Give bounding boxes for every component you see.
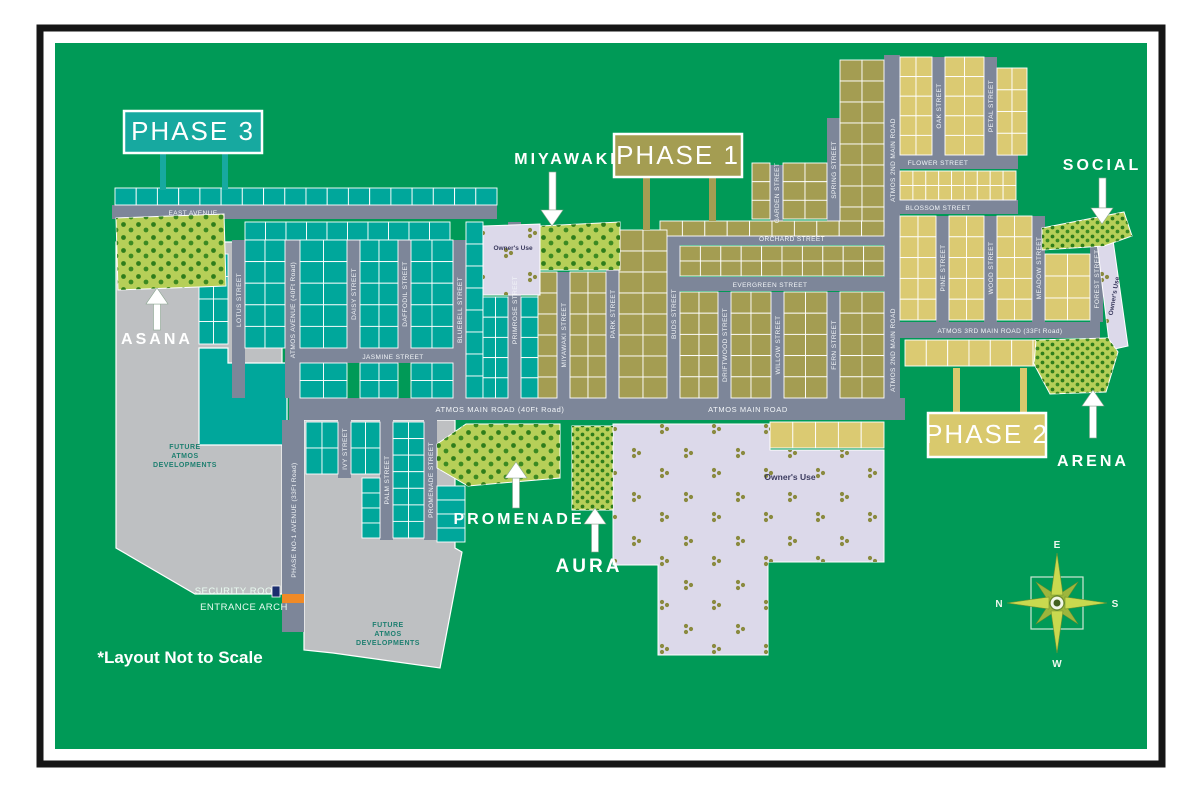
security-room-icon	[272, 586, 280, 597]
arena-label: ARENA	[1057, 453, 1129, 470]
street-label-atmos-main-40: ATMOS MAIN ROAD (40Ft Road)	[436, 405, 565, 414]
compass-east: E	[1054, 540, 1061, 551]
plot-grid	[360, 240, 398, 348]
street-label-blossom: BLOSSOM STREET	[905, 205, 970, 212]
phase3-label: PHASE 3	[131, 116, 255, 146]
plot-grid	[900, 216, 936, 320]
compass-south: S	[1112, 599, 1119, 610]
street-label-willow: WILLOW STREET	[775, 315, 782, 374]
plot-grid	[362, 478, 380, 538]
street-label-phase-no1-avenue: PHASE NO-1 AVENUE (33Ft Road)	[291, 462, 298, 577]
plot-grid	[900, 171, 1016, 200]
asana-label: ASANA	[121, 331, 193, 348]
street-label-orchard: ORCHARD STREET	[759, 236, 825, 243]
plot-grid	[245, 240, 285, 348]
aura-area	[572, 426, 613, 510]
street-label-meadow: MEADOW STREET	[1036, 237, 1043, 300]
plot-grid	[300, 240, 347, 348]
street-label-atmos-avenue: ATMOS AVENUE (40Ft Road)	[290, 262, 297, 358]
plot-grid	[538, 272, 557, 398]
street-label-lotus: LOTUS STREET	[236, 273, 243, 327]
plot-grid	[411, 363, 453, 398]
road-atmos-main	[289, 398, 905, 420]
entrance-arch-icon	[282, 594, 304, 603]
phase1-stem-right	[709, 176, 716, 221]
layout-note: *Layout Not to Scale	[97, 648, 262, 667]
street-label-buds: BUDS STREET	[671, 289, 678, 339]
plot-grid	[783, 163, 827, 219]
street-label-atmos-2nd-b: ATMOS 2ND MAIN ROAD	[890, 308, 897, 392]
promenade-label: PROMENADE	[453, 511, 584, 528]
street-label-daisy: DAISY STREET	[351, 268, 358, 320]
plot-grid	[840, 292, 884, 398]
street-label-atmos-main: ATMOS MAIN ROAD	[708, 405, 788, 414]
plot-grid	[770, 422, 884, 448]
plot-grid	[393, 422, 424, 538]
street-label-evergreen: EVERGREEN STREET	[733, 282, 808, 289]
site-map: EAST AVENUE ATMOS MAIN ROAD (40Ft Road) …	[0, 0, 1200, 800]
street-label-daffodil: DAFFODIL STREET	[402, 261, 409, 326]
street-label-palm: PALM STREET	[384, 455, 391, 504]
entrance-arch-label: ENTRANCE ARCH	[200, 602, 288, 613]
plot-grid	[306, 422, 338, 474]
plot-grid	[731, 292, 771, 398]
plot-grid	[115, 188, 497, 205]
street-label-ivy: IVY STREET	[342, 428, 349, 470]
street-label-flower: FLOWER STREET	[908, 160, 968, 167]
asana-area	[116, 214, 226, 290]
plot-grid	[411, 240, 453, 348]
future-dev-left-line1: FUTURE	[169, 444, 200, 451]
future-dev-bottom-line1: FUTURE	[372, 622, 403, 629]
social-label: SOCIAL	[1063, 157, 1141, 174]
street-label-promenade-street: PROMENADE STREET	[428, 442, 435, 518]
street-label-pine: PINE STREET	[940, 244, 947, 291]
owners-use-label-top: Owner's Use	[493, 245, 533, 252]
aura-label: AURA	[556, 556, 623, 577]
street-label-oak: OAK STREET	[936, 83, 943, 128]
phase3-stem-right	[222, 152, 228, 190]
miyawaki-area	[540, 222, 620, 270]
plot-grid	[245, 222, 450, 240]
arena-area	[1034, 338, 1118, 394]
plot-grid	[784, 292, 827, 398]
plot-grid	[997, 68, 1027, 155]
street-label-spring: SPRING STREET	[831, 141, 838, 199]
compass-north: N	[995, 599, 1002, 610]
street-label-atmos-2nd-a: ATMOS 2ND MAIN ROAD	[890, 118, 897, 202]
phase2-label: PHASE 2	[925, 419, 1049, 449]
plot-grid	[997, 216, 1032, 320]
future-dev-left-line2: ATMOS	[171, 453, 198, 460]
plot-grid	[360, 363, 398, 398]
future-dev-bottom-line2: ATMOS	[374, 631, 401, 638]
plot-grid	[619, 230, 667, 398]
street-label-jasmine: JASMINE STREET	[362, 354, 423, 361]
street-label-primrose: PRIMROSE STREET	[512, 276, 519, 344]
street-label-bluebell: BLUEBELL STREET	[457, 277, 464, 343]
street-label-miyawaki-street: MIYAWAKI STREET	[561, 303, 568, 368]
plot-grid	[900, 57, 932, 155]
plot-grid	[483, 297, 508, 398]
layout-map-page: EAST AVENUE ATMOS MAIN ROAD (40Ft Road) …	[0, 0, 1200, 800]
future-dev-left-line3: DEVELOPMENTS	[153, 462, 217, 469]
plot-grid	[300, 363, 347, 398]
street-label-garden: GARDEN STREET	[774, 163, 781, 223]
plot-grid	[752, 163, 770, 219]
phase3-stem-left	[160, 152, 166, 190]
street-label-wood: WOOD STREET	[988, 242, 995, 295]
plot-grid	[570, 272, 606, 398]
street-label-atmos-3rd: ATMOS 3RD MAIN ROAD (33Ft Road)	[938, 328, 1063, 335]
owners-use-label-center: Owner's Use	[764, 472, 815, 482]
future-dev-bottom-line3: DEVELOPMENTS	[356, 640, 420, 647]
plot-grid	[945, 57, 984, 155]
plot-grid	[1045, 254, 1090, 320]
compass-west: W	[1052, 659, 1062, 670]
street-label-forest: FOREST STREET	[1094, 250, 1101, 309]
plot-grid	[680, 292, 718, 398]
street-label-driftwood: DRIFTWOOD STREET	[722, 308, 729, 382]
plot-grid	[949, 216, 984, 320]
plot-grid	[660, 221, 884, 236]
phase1-stem-left	[643, 176, 650, 230]
phase1-label: PHASE 1	[616, 140, 740, 170]
street-label-park: PARK STREET	[610, 289, 617, 338]
phase2-stem-right	[1020, 368, 1027, 414]
street-label-fern: FERN STREET	[831, 320, 838, 370]
plot-grid	[521, 297, 538, 398]
plot-grid	[351, 422, 380, 474]
plot-grid	[680, 246, 884, 276]
phase2-stem-left	[953, 368, 960, 414]
plot-grid	[840, 60, 884, 228]
street-label-petal: PETAL STREET	[988, 80, 995, 132]
miyawaki-label: MIYAWAKI	[514, 151, 617, 168]
plot-grid	[466, 222, 483, 398]
promenade-area	[437, 424, 560, 486]
street-label-east-avenue: EAST AVENUE	[169, 210, 218, 217]
security-room-label: SECURITY ROOM	[195, 586, 282, 597]
